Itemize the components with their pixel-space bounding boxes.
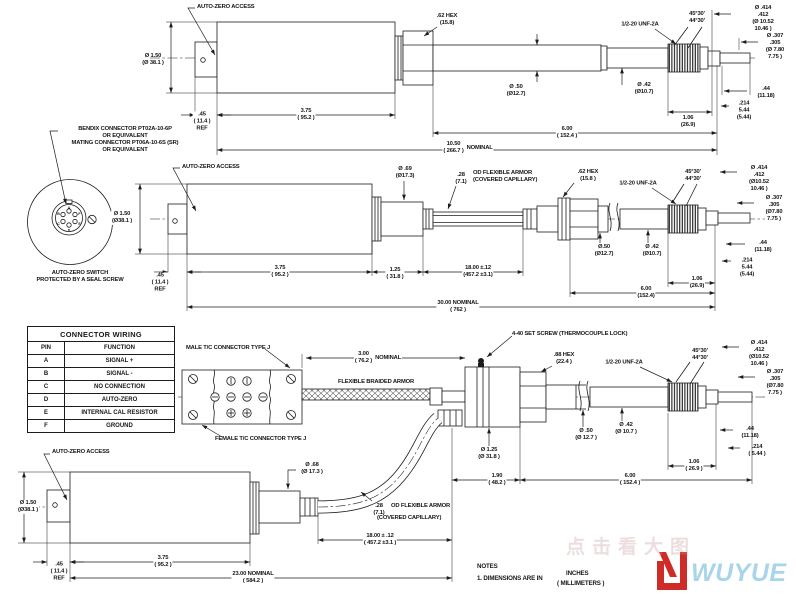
v4-adapter-diameter-dim: Ø .68 (Ø 17.3 ) [301,462,323,476]
v2-armor-label: OD FLEXIBLE ARMOR (COVERED CAPILLARY) [473,170,537,184]
seal-screw-icon [88,215,96,223]
v2-overall-length-dim: 30.00 NOMINAL ( 762 ) [436,300,479,314]
notes-units-inches: INCHES [566,570,588,578]
v2-hex-dim: .62 HEX (15.8 ) [578,169,599,183]
v3-tip-diameter2-dim: Ø .307 .305 (Ø7.80 7.75 ) [767,369,784,397]
v2-chamfer-angles: 45°30' 44°30' [685,169,701,183]
wiring-header-function: FUNCTION [65,342,175,355]
v1-tip-length1-dim: .44 (11.18) [758,86,775,100]
v3-thread-length-dim: 1.06 ( 26.9 ) [684,459,703,473]
v1-thread-spec: 1/2-20 UNF-2A [621,21,658,28]
watermark-text: 点击看大图 [566,532,696,559]
v4-body-length-dim: 3.75 ( 95.2 ) [153,555,172,569]
pin-cell: C [28,381,65,394]
v4-armor-label2: (COVERED CAPILLARY) [377,515,441,522]
v4-ref-dim: .45 ( 11.4 ) REF [50,561,69,582]
v2-body-length-dim: 3.75 ( 95.2 ) [270,265,289,279]
brand-wordmark: WUYUE [691,559,787,588]
notes-units-mm: ( MILLIMETERS ) [557,580,604,588]
function-cell: SIGNAL + [65,355,175,368]
notes-heading: NOTES [477,563,498,571]
pin-c-label: C [57,222,60,226]
v2-adapter-length-dim: 1.25 ( 31.8 ) [385,267,404,281]
v1-overall-nominal: NOMINAL [467,144,493,151]
v1-shaft-length-dim: 6.00 ( 152.4 ) [556,126,578,140]
table-row: CNO CONNECTION [28,381,175,394]
pin-cell: B [28,368,65,381]
v2-shaft-length-dim: 6.00 (152.4) [636,286,655,300]
v3-braided-armor-label: FLEXIBLE BRAIDED ARMOR [337,379,415,386]
v1-overall-length-dim: 10.50 ( 266.7 ) NOMINAL [442,141,493,155]
v4-auto-zero-access-label: AUTO-ZERO ACCESS [52,449,110,456]
v3-male-connector-label: MALE T/C CONNECTOR TYPE J [186,345,270,352]
v1-tip-diameter1-dim: Ø .414 .412 (Ø 10.52 10.46 ) [752,5,773,33]
engineering-drawing-sheet: .s{stroke:#1c1c1c;stroke-width:.8;fill:n… [0,0,796,609]
v3-lead-value: 3.00 ( 76.2 ) [355,351,372,365]
v1-hex-dim: .62 HEX (15.8) [437,13,458,27]
v2-thread-spec: 1/2-20 UNF-2A [619,180,656,187]
v3-shaft-length-dim: 6.00 ( 152.4 ) [619,473,641,487]
v2-tip-length2-dim: .214 5.44 (5.44) [740,257,754,278]
v2-tip-diameter2-dim: Ø .307 .305 (Ø7.80 7.75 ) [766,195,783,223]
wiring-header-pin: PIN [28,342,65,355]
v1-shaft-diameter-dim: Ø .50 (Ø12.7) [507,84,526,98]
v2-ref-dim: .45 ( 11.4 ) REF [151,272,170,293]
v3-lead-nominal: NOMINAL [375,354,401,361]
v3-tip-length2-dim: .214 ( 5.44 ) [748,444,765,458]
pin-cell: F [28,420,65,433]
pin-d-label: D [68,229,71,233]
function-cell: NO CONNECTION [65,381,175,394]
auto-zero-switch-caption: AUTO-ZERO SWITCH PROTECTED BY A SEAL SCR… [36,270,123,284]
v3-tip-length1-dim: .44 (11.18) [742,426,759,440]
function-cell: AUTO-ZERO [65,394,175,407]
v1-tip-length2-dim: .214 5.44 (5.44) [737,100,751,121]
v4-armor-length-dim: 18.00 ± .12 ( 457.2 ±3.1 ) [363,533,397,547]
v2-stub-diameter-dim: Ø .42 (Ø10.7) [643,244,662,258]
v3-chamfer-angles: 45°30' 44°30' [692,348,708,362]
v4-body-diameter-dim: Ø 1.50 (Ø38.1 ) [17,500,39,514]
v2-shaft-diameter-dim: Ø.50 (Ø12.7) [595,244,614,258]
pin-cell: E [28,407,65,420]
function-cell: GROUND [65,420,175,433]
v2-thread-length-dim: 1.06 (26.9) [689,276,705,290]
table-row: EINTERNAL CAL RESISTOR [28,407,175,420]
wiring-table-title: CONNECTOR WIRING [28,327,175,342]
v3-tip-diameter1-dim: Ø .414 .412 (Ø10.52 10.46 ) [749,340,769,368]
function-cell: INTERNAL CAL RESISTOR [65,407,175,420]
function-cell: SIGNAL - [65,368,175,381]
v3-body-diameter-dim: Ø 1.25 (Ø 31.8 ) [478,447,500,461]
v3-hex-dim: .88 HEX (22.4 ) [554,352,575,366]
v1-auto-zero-access-label: AUTO-ZERO ACCESS [197,4,255,11]
v3-shaft-diameter-dim: Ø .50 (Ø 12.7 ) [575,428,597,442]
v1-body-length-dim: 3.75 ( 95.2 ) [296,108,315,122]
v2-body-diameter-dim: Ø 1.50 (Ø38.1 ) [111,211,133,225]
pin-cell: D [28,394,65,407]
v4-armor-label: OD FLEXIBLE ARMOR [391,503,450,510]
v1-tip-diameter2-dim: Ø .307 .305 (Ø 7.80 7.75 ) [766,33,784,61]
table-row: ASIGNAL + [28,355,175,368]
v2-tip-diameter1-dim: Ø .414 .412 (Ø10.52 10.46 ) [749,165,769,193]
connector-wiring-table: CONNECTOR WIRING PIN FUNCTION ASIGNAL + … [27,326,175,433]
table-row: FGROUND [28,420,175,433]
v3-body-length-dim: 1.90 ( 48.2 ) [487,473,506,487]
pin-b-label: B [57,212,60,216]
v1-overall-value: 10.50 ( 266.7 ) [443,141,463,155]
v2-armor-diameter-dim: .28 (7.1) [455,172,466,186]
v1-thread-length-dim: 1.06 (26.9) [681,115,695,129]
v3-female-connector-label: FEMALE T/C CONNECTOR TYPE J [215,436,306,443]
bendix-connector-callout: BENDIX CONNECTOR PT02A-10-6P OR EQUIVALE… [58,126,192,154]
v3-set-screw-label: 4-40 SET SCREW (THERMOCOUPLE LOCK) [512,331,627,338]
view2-drawing [135,168,765,311]
v1-body-diameter-dim: Ø 1.50 (Ø 38.1 ) [142,53,164,67]
v2-tip-length1-dim: .44 (11.18) [755,240,772,254]
v3-stub-diameter-dim: Ø .42 (Ø 10.7 ) [615,422,637,436]
notes-line1: 1. DIMENSIONS ARE IN [477,575,543,583]
v3-lead-length-dim: 3.00 ( 76.2 ) NOMINAL [354,351,402,365]
pin-cell: A [28,355,65,368]
v2-auto-zero-access-label: AUTO-ZERO ACCESS [182,164,240,171]
v1-stub-diameter-dim: Ø .42 (Ø10.7) [635,82,654,96]
table-row: DAUTO-ZERO [28,394,175,407]
v1-chamfer-angles: 45°30' 44°30' [689,11,705,25]
v3-thread-spec: 1/2-20 UNF-2A [605,359,642,366]
v2-adapter-diameter-dim: Ø .69 (Ø17.3) [396,166,415,180]
table-row: BSIGNAL - [28,368,175,381]
v4-overall-length-dim: 23.00 NOMINAL ( 584.2 ) [231,571,274,585]
view1-drawing [150,8,758,155]
v1-ref-dim: .45 ( 11.4 ) REF [193,111,212,132]
v2-armor-length-dim: 18.00 ±.12 (457.2 ±3.1) [462,265,493,279]
